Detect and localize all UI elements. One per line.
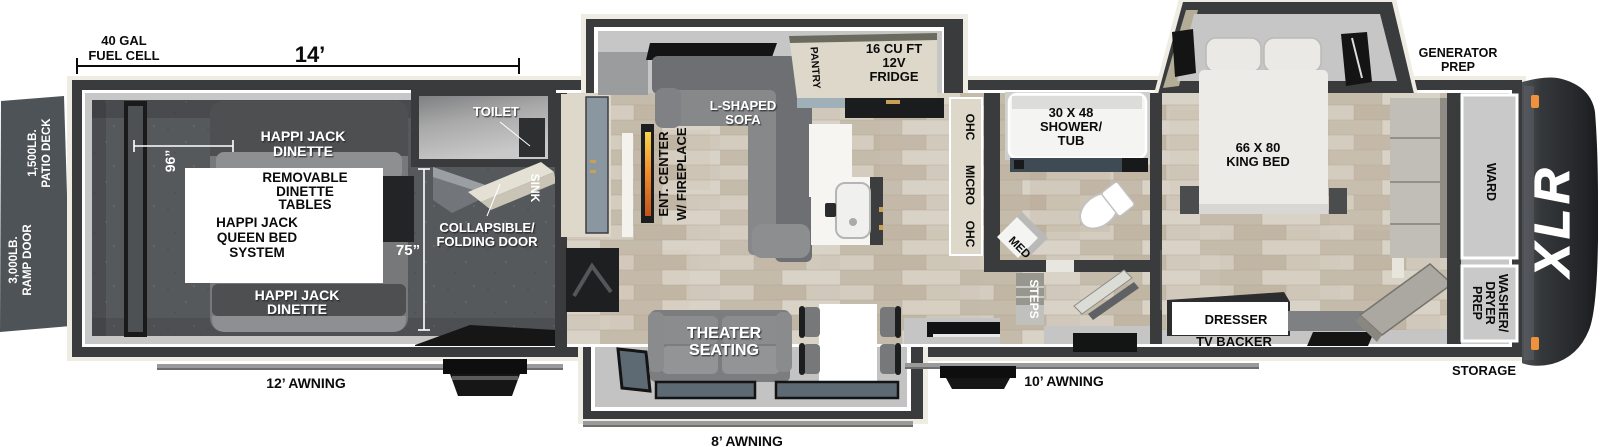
svg-text:REMOVABLE: REMOVABLE bbox=[262, 170, 347, 185]
svg-text:OHC: OHC bbox=[963, 114, 977, 141]
svg-text:MICRO: MICRO bbox=[963, 165, 977, 205]
svg-text:TOILET: TOILET bbox=[473, 104, 519, 119]
svg-text:16 CU FT: 16 CU FT bbox=[866, 41, 922, 56]
svg-text:DRYER: DRYER bbox=[1483, 281, 1497, 324]
svg-text:HAPPI JACK: HAPPI JACK bbox=[261, 128, 346, 144]
svg-text:1,500LB.: 1,500LB. bbox=[27, 129, 39, 176]
svg-text:OHC: OHC bbox=[963, 221, 977, 248]
svg-text:QUEEN BED: QUEEN BED bbox=[217, 230, 298, 245]
svg-text:PREP: PREP bbox=[1441, 60, 1475, 74]
svg-text:WASHER/: WASHER/ bbox=[1496, 274, 1510, 333]
svg-text:TV BACKER: TV BACKER bbox=[1196, 334, 1272, 349]
svg-text:L-SHAPED: L-SHAPED bbox=[710, 98, 776, 113]
svg-text:SINK: SINK bbox=[528, 174, 542, 203]
svg-text:SHOWER/: SHOWER/ bbox=[1040, 119, 1103, 134]
svg-text:STEPS: STEPS bbox=[1027, 279, 1041, 318]
svg-text:PREP: PREP bbox=[1470, 286, 1484, 320]
svg-text:SYSTEM: SYSTEM bbox=[229, 245, 285, 260]
svg-text:WARD: WARD bbox=[1484, 163, 1498, 201]
svg-text:66 X 80: 66 X 80 bbox=[1236, 140, 1281, 155]
svg-text:W/ FIREPLACE: W/ FIREPLACE bbox=[674, 127, 689, 220]
svg-text:KING BED: KING BED bbox=[1226, 154, 1290, 169]
svg-text:DINETTE: DINETTE bbox=[273, 143, 333, 159]
svg-text:THEATER: THEATER bbox=[687, 325, 762, 342]
svg-text:ENT. CENTER: ENT. CENTER bbox=[656, 131, 671, 217]
svg-text:GENERATOR: GENERATOR bbox=[1419, 46, 1498, 60]
svg-text:30 X 48: 30 X 48 bbox=[1049, 105, 1094, 120]
svg-text:XLR: XLR bbox=[1526, 164, 1580, 280]
svg-text:SOFA: SOFA bbox=[725, 112, 761, 127]
svg-text:75”: 75” bbox=[396, 242, 420, 259]
svg-text:TUB: TUB bbox=[1058, 133, 1085, 148]
svg-text:TABLES: TABLES bbox=[279, 197, 332, 212]
svg-text:12’ AWNING: 12’ AWNING bbox=[266, 375, 346, 391]
svg-text:DINETTE: DINETTE bbox=[267, 301, 327, 317]
svg-text:40 GAL: 40 GAL bbox=[101, 33, 147, 48]
svg-text:DRESSER: DRESSER bbox=[1205, 312, 1268, 327]
svg-text:3,000LB.: 3,000LB. bbox=[8, 236, 20, 283]
svg-text:96”: 96” bbox=[162, 150, 178, 173]
svg-text:FOLDING DOOR: FOLDING DOOR bbox=[436, 234, 538, 249]
svg-text:FRIDGE: FRIDGE bbox=[869, 69, 918, 84]
svg-text:PATIO DECK: PATIO DECK bbox=[41, 118, 53, 188]
svg-text:RAMP DOOR: RAMP DOOR bbox=[22, 224, 34, 296]
svg-text:12V: 12V bbox=[882, 55, 905, 70]
svg-text:SEATING: SEATING bbox=[689, 342, 759, 359]
svg-text:STORAGE: STORAGE bbox=[1452, 363, 1516, 378]
svg-text:HAPPI JACK: HAPPI JACK bbox=[216, 215, 298, 230]
svg-text:FUEL CELL: FUEL CELL bbox=[88, 48, 159, 63]
svg-text:10’ AWNING: 10’ AWNING bbox=[1024, 373, 1104, 389]
svg-text:8’ AWNING: 8’ AWNING bbox=[711, 433, 783, 447]
svg-text:COLLAPSIBLE/: COLLAPSIBLE/ bbox=[439, 220, 535, 235]
svg-text:14’: 14’ bbox=[295, 42, 326, 67]
